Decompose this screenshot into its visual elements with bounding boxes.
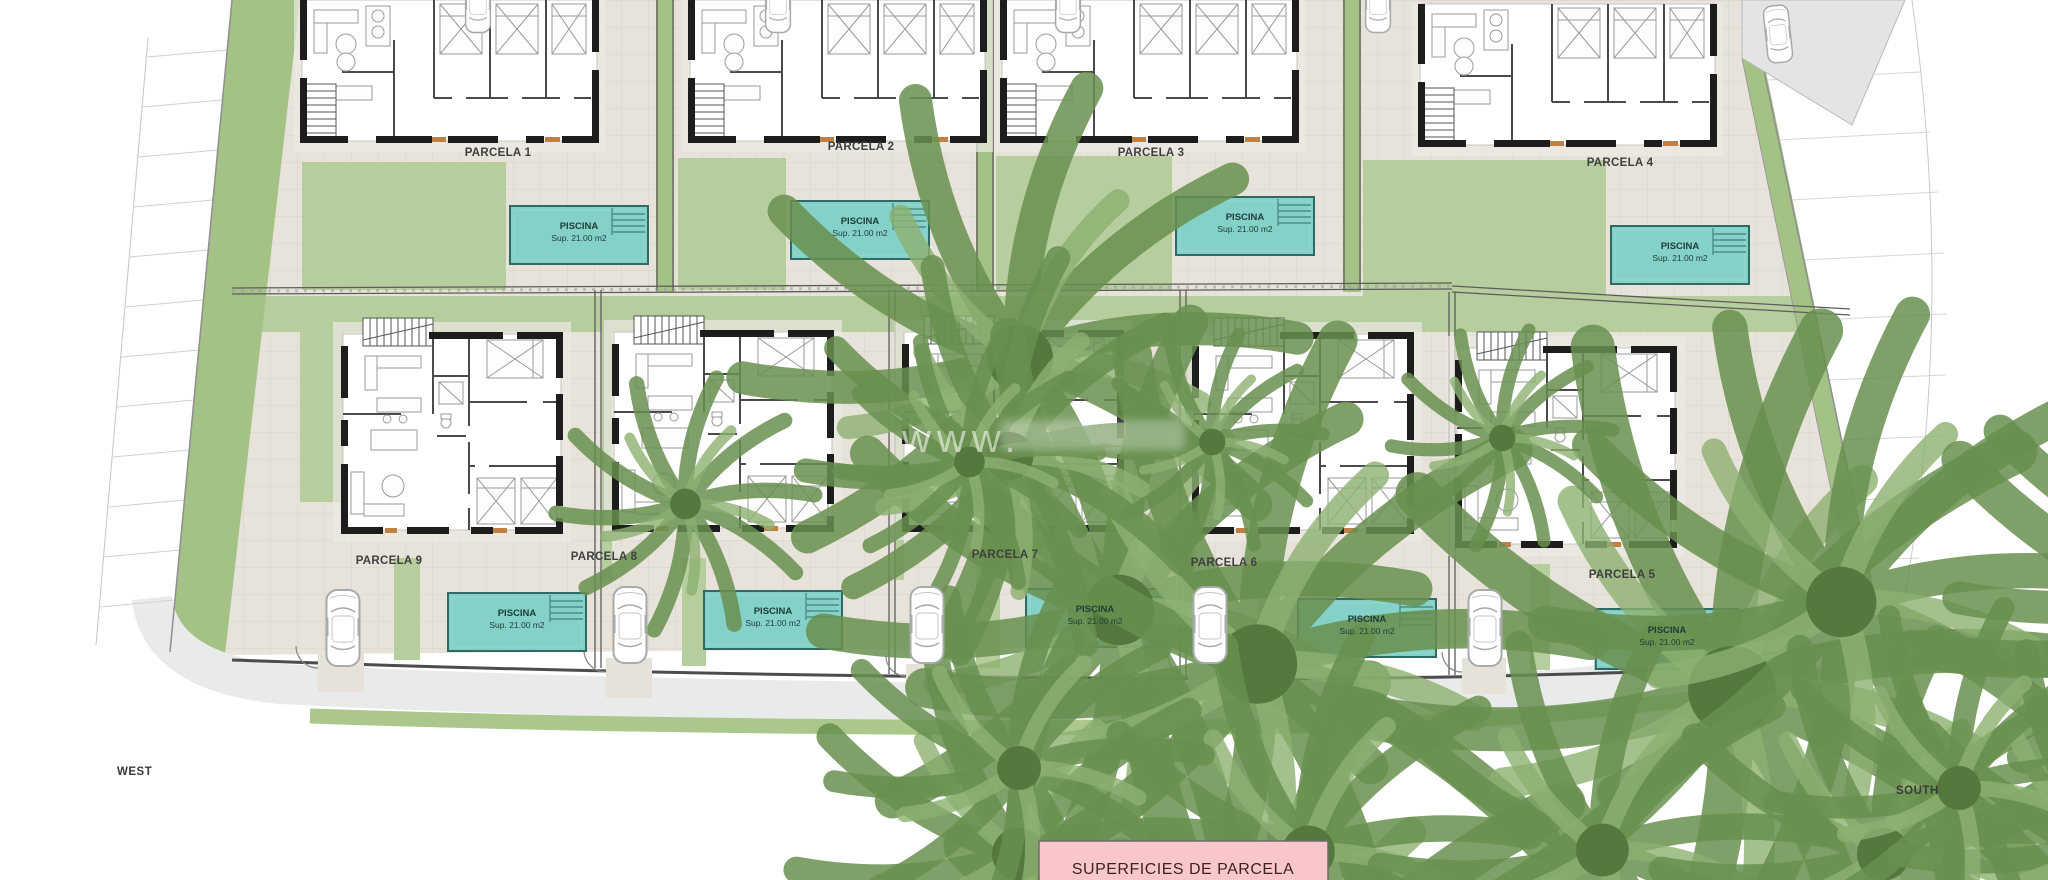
- car-icon: [1056, 0, 1081, 33]
- house-floorplan-parcela-9: [333, 318, 571, 542]
- parcel-label-4: PARCELA 4: [1587, 157, 1654, 169]
- pool-name: PISCINA: [754, 606, 793, 617]
- pool-name: PISCINA: [1076, 604, 1115, 615]
- house-floorplan-parcela-1: [294, 0, 605, 152]
- parcel-label-5: PARCELA 5: [1589, 569, 1656, 581]
- car-icon: [327, 590, 360, 666]
- parcel-label-3: PARCELA 3: [1118, 147, 1185, 159]
- car-icon: [466, 0, 491, 33]
- pool-area: Sup. 21.00 m2: [1339, 626, 1395, 636]
- car-icon: [911, 587, 944, 663]
- parcel-label-8: PARCELA 8: [571, 551, 638, 563]
- car-icon: [1763, 4, 1794, 63]
- pool-area: Sup. 21.00 m2: [1217, 224, 1273, 234]
- compass-west-label: WEST: [117, 766, 152, 778]
- car-icon: [1194, 587, 1227, 663]
- site-plan: www. PARCELA 1 PARCELA 2 PARCELA 3 PARCE…: [0, 0, 2048, 880]
- pool-area: Sup. 21.00 m2: [489, 620, 545, 630]
- pool-area: Sup. 21.00 m2: [1639, 637, 1695, 647]
- pool-name: PISCINA: [560, 221, 599, 232]
- parcel-label-1: PARCELA 1: [465, 147, 532, 159]
- car-icon: [766, 0, 791, 33]
- pool-area: Sup. 21.00 m2: [745, 618, 801, 628]
- pool-name: PISCINA: [1661, 241, 1700, 252]
- pool-name: PISCINA: [1648, 625, 1687, 636]
- legend-title: SUPERFICIES DE PARCELA: [1072, 861, 1294, 878]
- pool-name: PISCINA: [841, 216, 880, 227]
- car-icon: [1469, 590, 1502, 666]
- parcel-label-9: PARCELA 9: [356, 555, 423, 567]
- car-icon: [614, 587, 647, 663]
- site-plan-drawing: www. PARCELA 1 PARCELA 2 PARCELA 3 PARCE…: [0, 0, 2048, 880]
- legend: SUPERFICIES DE PARCELA: [1039, 841, 1328, 880]
- pool-name: PISCINA: [1348, 614, 1387, 625]
- parcel-label-6: PARCELA 6: [1191, 557, 1258, 569]
- compass-south-label: SOUTH: [1896, 785, 1939, 797]
- pool-area: Sup. 21.00 m2: [1067, 616, 1123, 626]
- watermark-text: www.: [901, 417, 1022, 461]
- pool-area: Sup. 21.00 m2: [551, 233, 607, 243]
- parcel-label-7: PARCELA 7: [972, 549, 1039, 561]
- parcel-label-2: PARCELA 2: [828, 141, 895, 153]
- pool-name: PISCINA: [1226, 212, 1265, 223]
- pool-name: PISCINA: [498, 608, 537, 619]
- house-floorplan-parcela-2: [682, 0, 993, 152]
- pool-area: Sup. 21.00 m2: [832, 228, 888, 238]
- pool-area: Sup. 21.00 m2: [1652, 253, 1708, 263]
- house-floorplan-parcela-4: [1412, 4, 1723, 156]
- car-icon: [1366, 0, 1391, 33]
- house-floorplan-parcela-3: [994, 0, 1305, 152]
